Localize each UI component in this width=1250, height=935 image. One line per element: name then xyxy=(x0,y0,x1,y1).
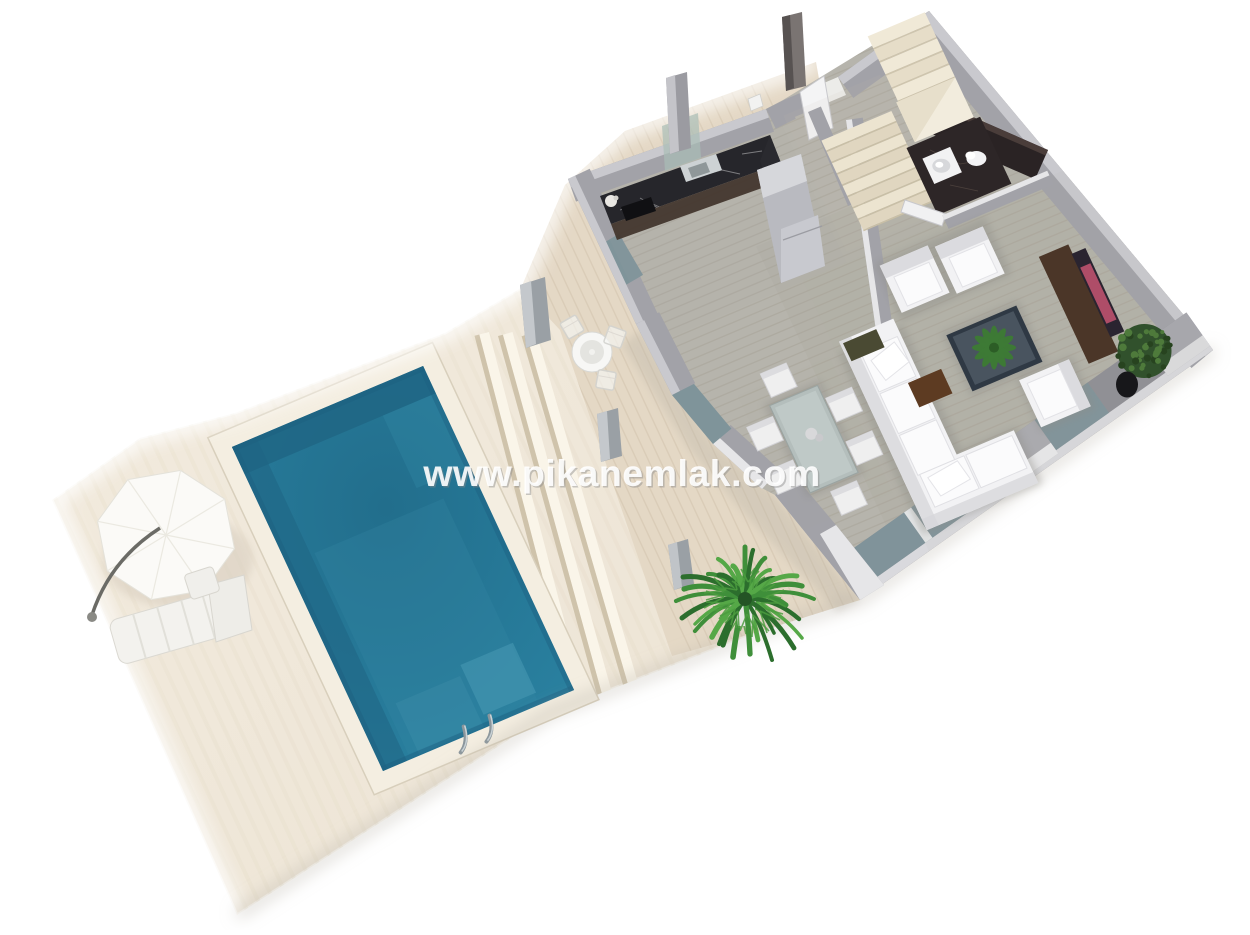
svg-text:www.pikanemlak.com: www.pikanemlak.com xyxy=(422,452,820,494)
